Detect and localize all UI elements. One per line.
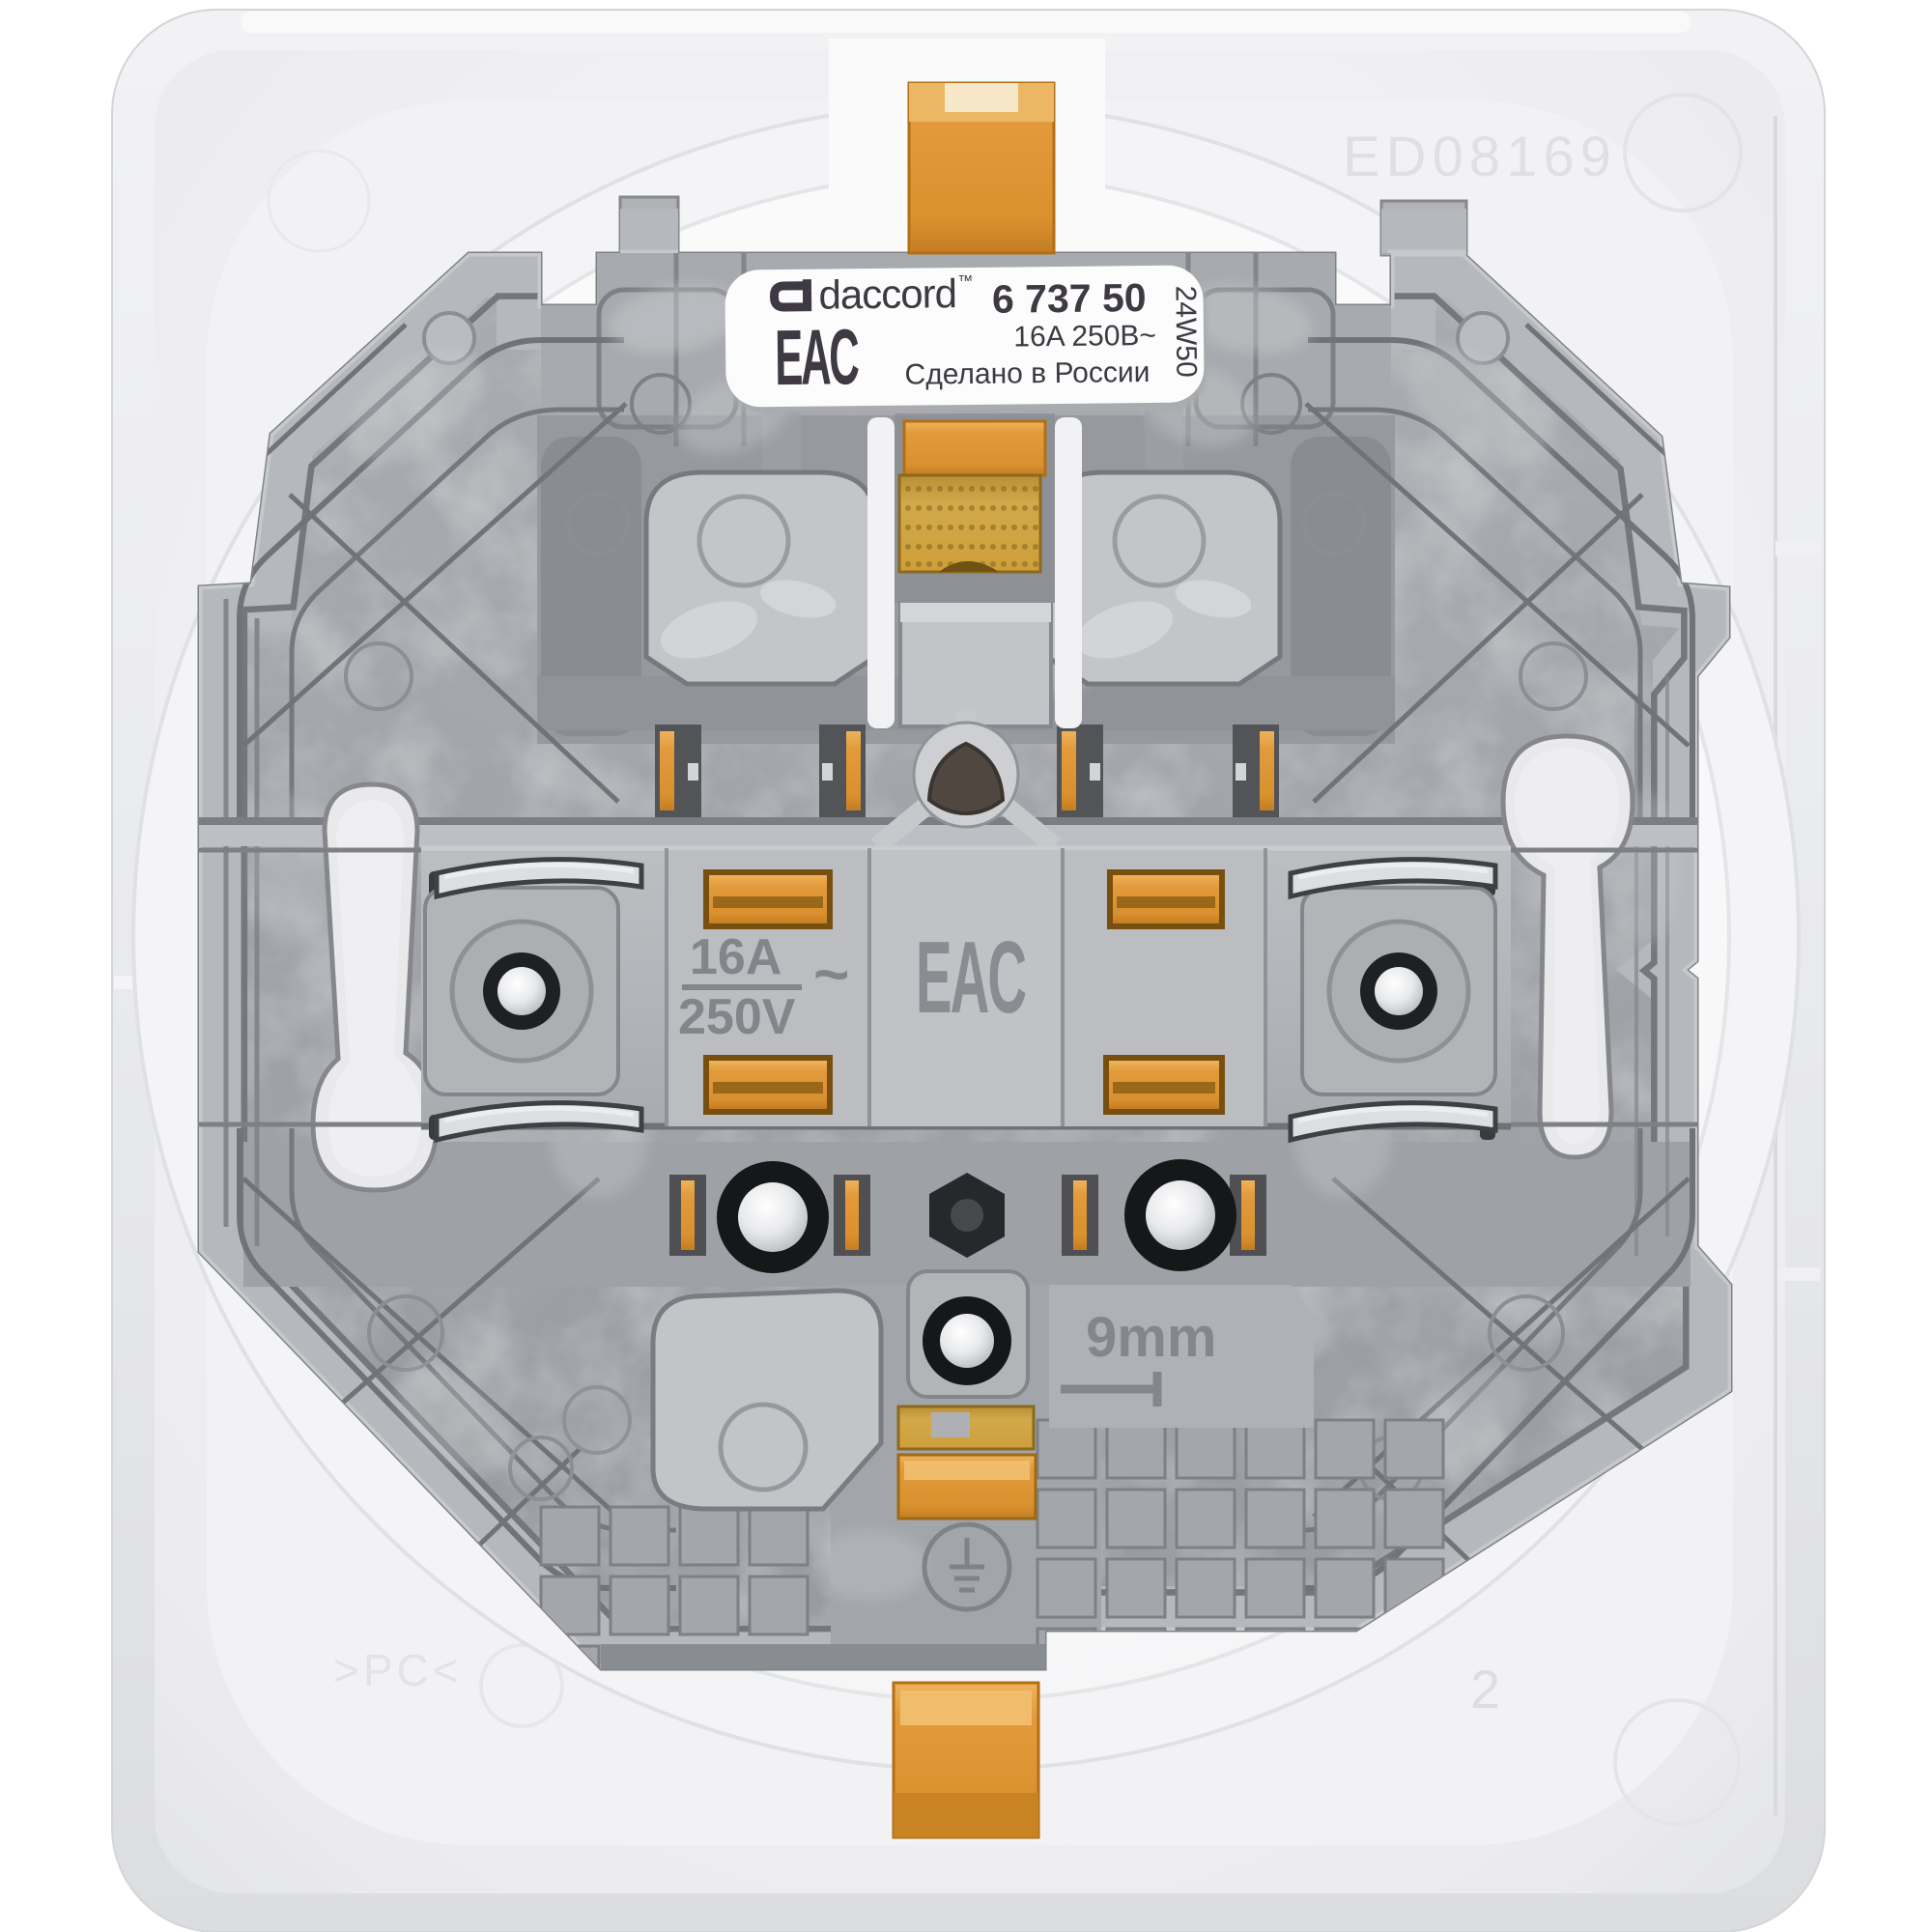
svg-text:daccord: daccord: [818, 270, 956, 317]
svg-text:6 737 50: 6 737 50: [992, 275, 1147, 322]
svg-text:>PC<: >PC<: [333, 1645, 463, 1695]
svg-text:24W50: 24W50: [1169, 285, 1202, 377]
svg-text:9mm: 9mm: [1086, 1306, 1216, 1369]
svg-text:™: ™: [957, 273, 973, 290]
svg-text:16A 250B~: 16A 250B~: [1013, 320, 1156, 354]
svg-text:EAC: EAC: [775, 313, 860, 402]
svg-text:2: 2: [1470, 1659, 1500, 1719]
svg-text:EAC: EAC: [916, 920, 1026, 1035]
svg-text:Сделано в России: Сделано в России: [904, 356, 1150, 391]
svg-text:16A: 16A: [690, 929, 781, 985]
svg-text:250V: 250V: [678, 989, 796, 1045]
svg-text:ED08169: ED08169: [1343, 126, 1617, 188]
svg-text:~: ~: [813, 939, 849, 1009]
